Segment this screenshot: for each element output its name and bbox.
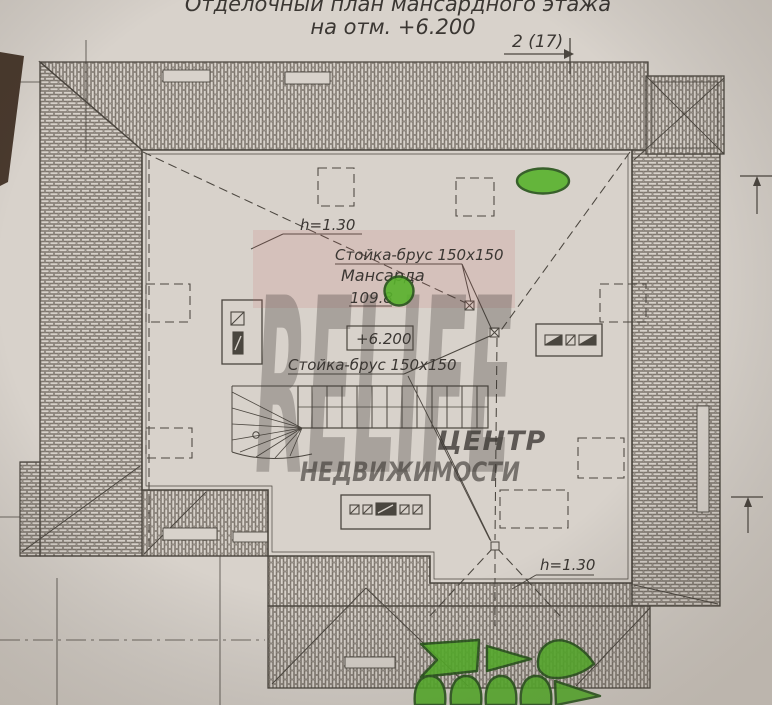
- title-line1: Отделочный план мансардного этажа: [185, 0, 611, 16]
- green-drop-3: [486, 676, 517, 705]
- watermark-line1: ЦЕНТР: [437, 426, 546, 457]
- post-label-bottom: Стойка-брус 150x150: [288, 356, 457, 374]
- vent-symbol-right: [536, 324, 602, 356]
- floor-plan-drawing: 2 (17) RELIFE ЦЕНТР НЕДВИЖИМОСТИ h=1.30 …: [0, 0, 772, 705]
- green-ellipse: [517, 169, 569, 194]
- section-marker-label: 2 (17): [512, 32, 563, 52]
- green-drop-1: [415, 676, 446, 705]
- elevation-label: +6.200: [356, 330, 412, 348]
- watermark-line2: НЕДВИЖИМОСТИ: [300, 457, 520, 488]
- green-dot: [385, 277, 414, 306]
- roof-height-bottom-label: h=1.30: [540, 556, 595, 574]
- green-drop-4: [521, 676, 552, 705]
- roof-height-top-label: h=1.30: [300, 216, 355, 234]
- green-drop-2: [451, 676, 482, 705]
- elevation-box: +6.200: [347, 326, 413, 350]
- roof-tower: [634, 76, 724, 160]
- room-name-label: Мансарда: [341, 266, 425, 285]
- blueprint-photo: 2 (17) RELIFE ЦЕНТР НЕДВИЖИМОСТИ h=1.30 …: [0, 0, 772, 705]
- title-line2: на отм. +6.200: [310, 15, 475, 39]
- post-label-top: Стойка-брус 150x150: [335, 246, 504, 264]
